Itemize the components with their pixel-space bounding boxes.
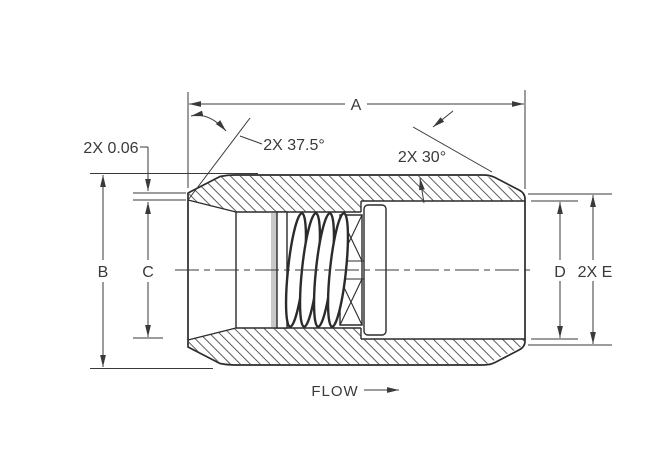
drawing-page: A B C D 2X E 2X 0.06 2X 37.5° 2X 30° FLO… — [0, 0, 650, 459]
dim-label-c: C — [142, 264, 154, 281]
dim-label-b: B — [98, 264, 109, 281]
dim-label-e: 2X E — [578, 264, 613, 281]
dim-label-outlet-chamfer: 2X 30° — [398, 149, 446, 166]
dim-label-lip-offset: 2X 0.06 — [83, 140, 138, 157]
flow-label: FLOW — [311, 383, 358, 400]
dim-lip-extension-lines — [133, 193, 186, 200]
dim-inlet-chamfer-arc — [191, 115, 226, 131]
dim-label-d: D — [554, 264, 566, 281]
dim-outlet-chamfer-leader — [433, 111, 453, 127]
dim-inlet-chamfer-leader — [240, 136, 262, 144]
dim-label-a: A — [351, 97, 362, 114]
dim-label-inlet-chamfer: 2X 37.5° — [263, 137, 325, 154]
valve-section-drawing: A B C D 2X E 2X 0.06 2X 37.5° 2X 30° FLO… — [0, 0, 650, 459]
